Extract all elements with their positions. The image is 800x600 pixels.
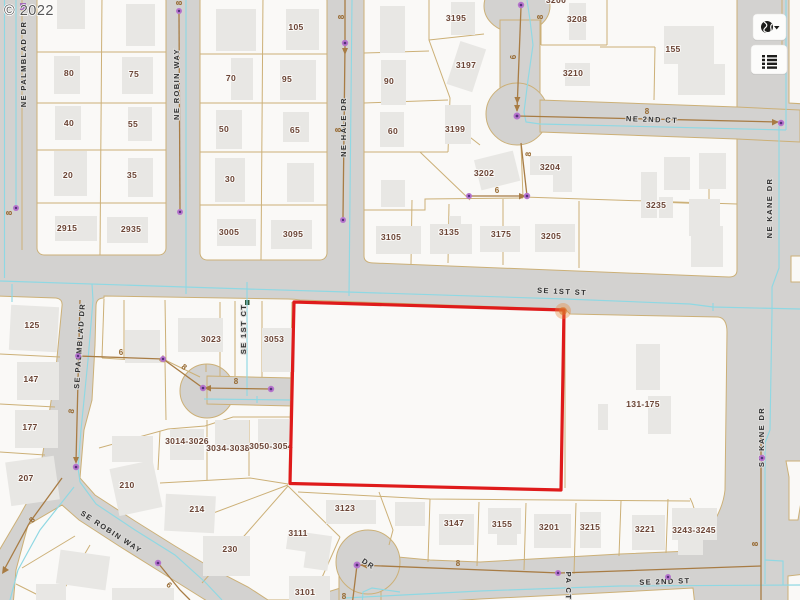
svg-text:8: 8 — [456, 559, 461, 568]
svg-text:NE 2ND CT: NE 2ND CT — [626, 114, 678, 125]
svg-text:3200: 3200 — [546, 0, 566, 5]
svg-text:50: 50 — [219, 124, 229, 134]
svg-text:3235: 3235 — [646, 200, 666, 210]
svg-text:6: 6 — [495, 186, 500, 195]
svg-text:3221: 3221 — [635, 524, 655, 534]
svg-text:3014-3026: 3014-3026 — [165, 436, 209, 446]
svg-text:210: 210 — [119, 480, 134, 490]
svg-text:3215: 3215 — [580, 522, 600, 532]
svg-text:3111: 3111 — [288, 528, 307, 538]
svg-text:3195: 3195 — [446, 13, 466, 23]
svg-text:3202: 3202 — [474, 168, 494, 178]
svg-text:147: 147 — [23, 374, 38, 384]
svg-text:207: 207 — [18, 473, 33, 483]
svg-text:155: 155 — [665, 44, 680, 54]
svg-text:125: 125 — [24, 320, 39, 330]
svg-text:80: 80 — [64, 68, 74, 78]
svg-text:214: 214 — [189, 504, 204, 514]
svg-text:8: 8 — [342, 592, 347, 600]
svg-text:40: 40 — [64, 118, 74, 128]
svg-text:2915: 2915 — [57, 223, 77, 233]
svg-text:3210: 3210 — [563, 68, 583, 78]
svg-text:6: 6 — [509, 54, 518, 59]
svg-text:3204: 3204 — [540, 162, 560, 172]
svg-text:35: 35 — [127, 170, 137, 180]
svg-text:105: 105 — [288, 22, 303, 32]
svg-text:55: 55 — [128, 119, 138, 129]
svg-text:8: 8 — [337, 14, 346, 19]
svg-text:3205: 3205 — [541, 231, 561, 241]
svg-text:131-175: 131-175 — [626, 399, 660, 409]
svg-text:8: 8 — [751, 541, 760, 546]
svg-text:8: 8 — [234, 377, 239, 386]
svg-text:NE ROBIN WAY: NE ROBIN WAY — [172, 48, 181, 120]
svg-text:75: 75 — [129, 69, 139, 79]
svg-text:3105: 3105 — [381, 232, 401, 242]
svg-text:3101: 3101 — [295, 587, 315, 597]
svg-text:NE PALMBLAD DR: NE PALMBLAD DR — [19, 21, 28, 108]
svg-text:SE 1ST CT: SE 1ST CT — [239, 304, 248, 355]
svg-text:3135: 3135 — [439, 227, 459, 237]
svg-text:8: 8 — [645, 107, 650, 116]
svg-text:3034-3038: 3034-3038 — [206, 443, 250, 453]
svg-text:NE HALE DR: NE HALE DR — [339, 97, 348, 157]
svg-text:20: 20 — [63, 170, 73, 180]
svg-text:230: 230 — [222, 544, 237, 554]
svg-text:8: 8 — [5, 210, 14, 215]
svg-text:3175: 3175 — [491, 229, 511, 239]
svg-text:3147: 3147 — [444, 518, 464, 528]
svg-text:PA CT: PA CT — [564, 572, 573, 600]
svg-text:3243-3245: 3243-3245 — [672, 525, 716, 535]
svg-text:2935: 2935 — [121, 224, 141, 234]
svg-text:70: 70 — [226, 73, 236, 83]
svg-text:3201: 3201 — [539, 522, 559, 532]
svg-text:30: 30 — [225, 174, 235, 184]
svg-text:3155: 3155 — [492, 519, 512, 529]
svg-text:65: 65 — [290, 125, 300, 135]
svg-text:3053: 3053 — [264, 334, 284, 344]
svg-text:8: 8 — [334, 127, 343, 132]
svg-text:3023: 3023 — [201, 334, 221, 344]
svg-text:3199: 3199 — [445, 124, 465, 134]
svg-text:3208: 3208 — [567, 14, 587, 24]
svg-text:8: 8 — [175, 0, 184, 5]
svg-text:3005: 3005 — [219, 227, 239, 237]
svg-text:© 2022: © 2022 — [4, 3, 54, 19]
svg-text:60: 60 — [388, 126, 398, 136]
svg-text:NE KANE DR: NE KANE DR — [765, 178, 774, 239]
svg-text:3123: 3123 — [335, 503, 355, 513]
svg-text:6: 6 — [119, 348, 124, 357]
svg-text:90: 90 — [384, 76, 394, 86]
svg-text:8: 8 — [536, 14, 545, 19]
svg-text:SE 2ND ST: SE 2ND ST — [639, 576, 691, 587]
svg-text:177: 177 — [22, 422, 37, 432]
svg-text:3095: 3095 — [283, 229, 303, 239]
svg-text:95: 95 — [282, 74, 292, 84]
svg-text:3050-3054: 3050-3054 — [249, 441, 293, 451]
svg-text:3197: 3197 — [456, 60, 476, 70]
